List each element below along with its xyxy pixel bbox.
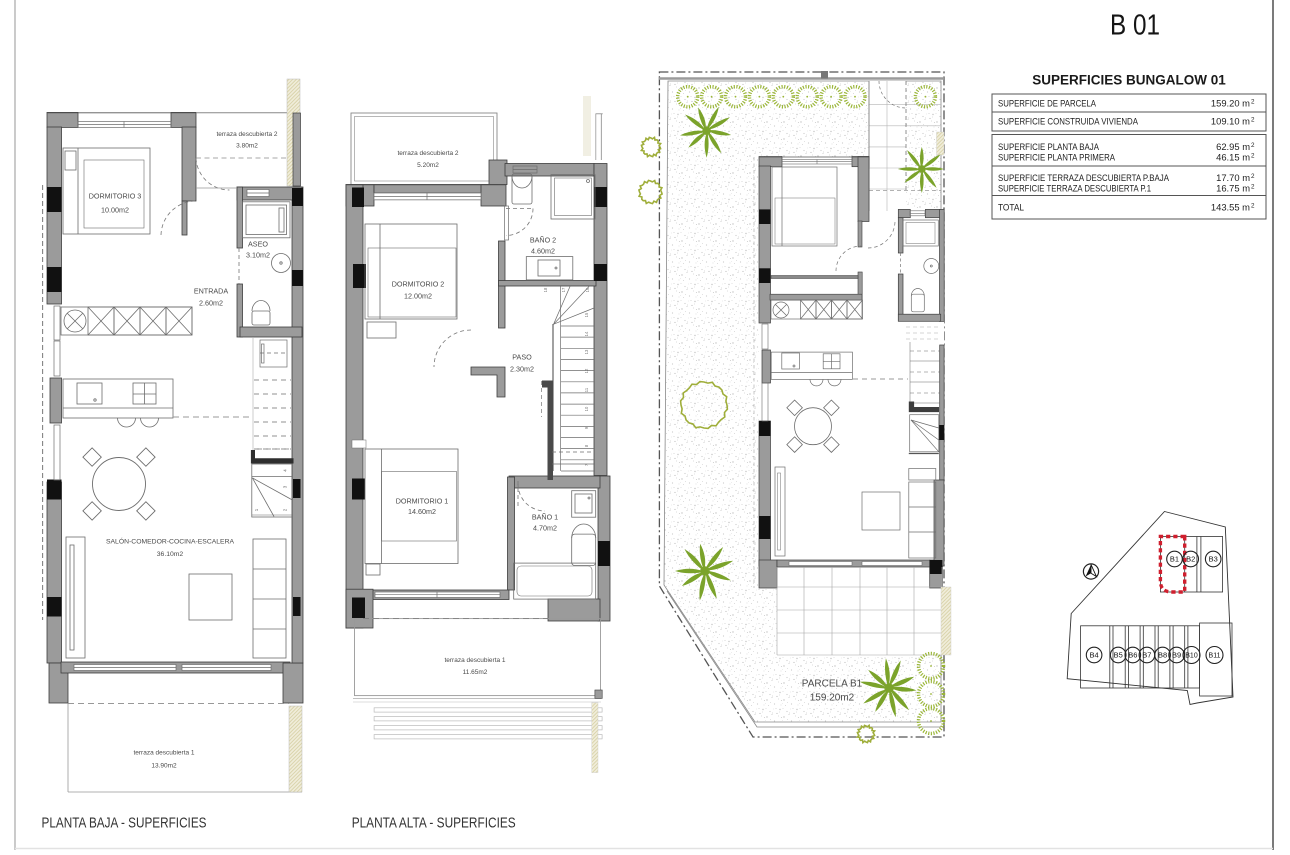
svg-text:B9: B9 (1172, 651, 1181, 660)
svg-text:B7: B7 (1142, 651, 1151, 660)
svg-text:DORMITORIO 2: DORMITORIO 2 (392, 280, 445, 289)
svg-text:SUPERFICIE TERRAZA DESCUBIERTA: SUPERFICIE TERRAZA DESCUBIERTA P.BAJA (998, 172, 1170, 183)
svg-text:DORMITORIO 3: DORMITORIO 3 (89, 192, 142, 201)
svg-text:2: 2 (1251, 117, 1255, 124)
svg-text:terraza descubierta 1: terraza descubierta 1 (444, 657, 505, 664)
svg-text:terraza descubierta 2: terraza descubierta 2 (216, 131, 277, 138)
svg-text:159.20m2: 159.20m2 (810, 693, 855, 704)
svg-text:14: 14 (584, 331, 589, 336)
svg-text:2: 2 (1251, 184, 1255, 191)
svg-text:B 01: B 01 (1110, 10, 1160, 42)
svg-text:2: 2 (1251, 173, 1255, 180)
svg-text:10: 10 (584, 406, 589, 411)
svg-text:SALÓN-COMEDOR-COCINA-ESCALERA: SALÓN-COMEDOR-COCINA-ESCALERA (106, 537, 234, 546)
svg-text:ENTRADA: ENTRADA (194, 287, 229, 296)
svg-text:12: 12 (584, 368, 589, 373)
svg-text:PASO: PASO (512, 353, 532, 362)
svg-text:10.00m2: 10.00m2 (101, 206, 129, 215)
svg-text:3.80m2: 3.80m2 (236, 143, 258, 150)
svg-text:12.00m2: 12.00m2 (404, 292, 432, 301)
svg-text:3.10m2: 3.10m2 (246, 251, 270, 260)
svg-text:159.20 m: 159.20 m (1211, 98, 1250, 109)
svg-text:17.70 m: 17.70 m (1216, 172, 1250, 183)
svg-text:B2: B2 (1186, 555, 1195, 564)
svg-text:SUPERFICIE CONSTRUIDA VIVIENDA: SUPERFICIE CONSTRUIDA VIVIENDA (998, 116, 1139, 127)
svg-text:B11: B11 (1209, 653, 1221, 660)
svg-text:BAÑO 2: BAÑO 2 (530, 236, 556, 245)
svg-text:2: 2 (1251, 153, 1255, 160)
svg-text:2.30m2: 2.30m2 (510, 365, 534, 374)
svg-text:ASEO: ASEO (248, 240, 268, 249)
svg-text:SUPERFICIES BUNGALOW 01: SUPERFICIES BUNGALOW 01 (1032, 73, 1226, 88)
svg-text:143.55 m: 143.55 m (1211, 202, 1250, 213)
svg-text:B1: B1 (1170, 555, 1179, 564)
svg-text:5.20m2: 5.20m2 (417, 162, 439, 169)
svg-text:B4: B4 (1090, 651, 1099, 660)
svg-text:16: 16 (585, 287, 590, 292)
svg-text:4.70m2: 4.70m2 (533, 524, 557, 533)
svg-text:B6: B6 (1128, 651, 1137, 660)
svg-text:46.15 m: 46.15 m (1216, 152, 1250, 163)
svg-text:SUPERFICIE PLANTA BAJA: SUPERFICIE PLANTA BAJA (998, 141, 1100, 152)
svg-text:11: 11 (584, 387, 589, 392)
svg-text:PLANTA BAJA - SUPERFICIES: PLANTA BAJA - SUPERFICIES (42, 815, 207, 832)
svg-text:B3: B3 (1209, 555, 1218, 564)
svg-text:PARCELA B1: PARCELA B1 (802, 679, 863, 690)
svg-text:2.60m2: 2.60m2 (199, 299, 223, 308)
svg-text:B5: B5 (1114, 651, 1123, 660)
svg-text:4.60m2: 4.60m2 (531, 247, 555, 256)
svg-text:B8: B8 (1158, 651, 1167, 660)
svg-text:2: 2 (1251, 203, 1255, 210)
svg-text:SUPERFICIE PLANTA PRIMERA: SUPERFICIE PLANTA PRIMERA (998, 152, 1116, 163)
svg-text:36.10m2: 36.10m2 (157, 551, 184, 558)
svg-text:17: 17 (561, 287, 566, 292)
svg-text:18: 18 (543, 287, 548, 292)
svg-text:11.65m2: 11.65m2 (463, 669, 488, 676)
svg-text:13: 13 (584, 349, 589, 354)
svg-text:B10: B10 (1185, 653, 1198, 660)
svg-text:BAÑO 1: BAÑO 1 (532, 513, 558, 522)
svg-text:terraza descubierta 1: terraza descubierta 1 (133, 750, 194, 757)
svg-text:2: 2 (1251, 99, 1255, 106)
svg-text:15: 15 (584, 312, 589, 317)
svg-text:16.75 m: 16.75 m (1216, 183, 1250, 194)
svg-text:14.60m2: 14.60m2 (408, 507, 436, 516)
svg-text:PLANTA ALTA - SUPERFICIES: PLANTA ALTA - SUPERFICIES (352, 815, 516, 832)
svg-text:SUPERFICIE DE PARCELA: SUPERFICIE DE PARCELA (998, 98, 1097, 109)
svg-text:SUPERFICIE TERRAZA DESCUBIERTA: SUPERFICIE TERRAZA DESCUBIERTA P.1 (998, 183, 1151, 194)
svg-text:terraza descubierta 2: terraza descubierta 2 (397, 150, 458, 157)
svg-text:13.90m2: 13.90m2 (151, 763, 177, 770)
svg-text:109.10 m: 109.10 m (1211, 116, 1250, 127)
svg-text:62.95 m: 62.95 m (1216, 141, 1250, 152)
svg-text:2: 2 (1251, 142, 1255, 149)
svg-text:TOTAL: TOTAL (998, 202, 1024, 213)
svg-text:DORMITORIO 1: DORMITORIO 1 (396, 497, 449, 506)
